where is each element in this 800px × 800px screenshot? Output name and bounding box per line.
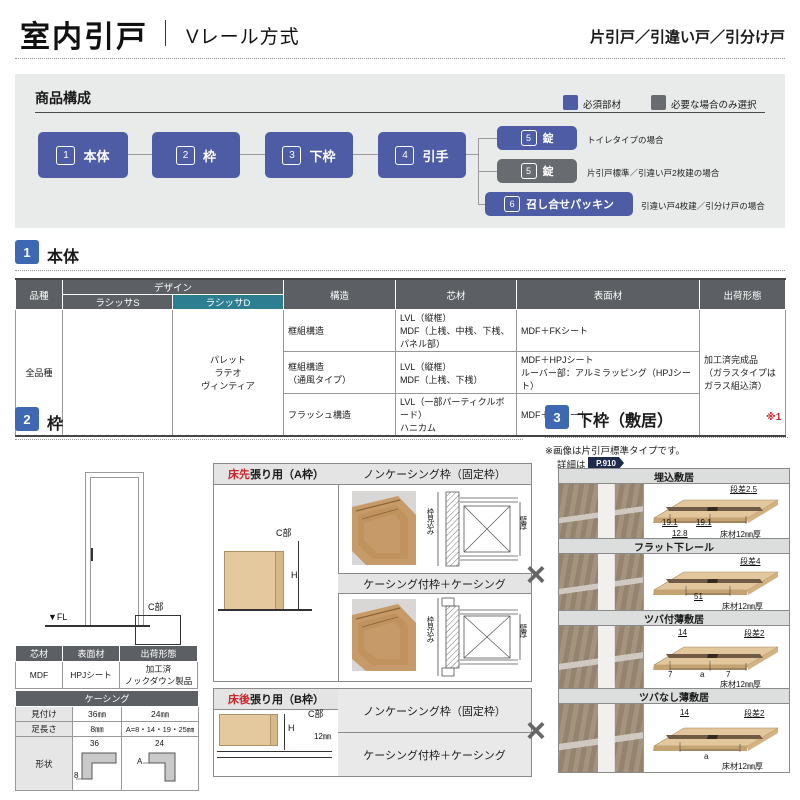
a-frame-header-red: 床先 — [228, 466, 250, 482]
floor-line — [217, 757, 332, 758]
composition-title: 商品構成 — [35, 88, 91, 108]
cell-shinzai: LVL（縦框） MDF（上桟、中桟、下桟、パネル部） — [396, 310, 517, 352]
kabeatsu-label: 壁厚 — [518, 516, 529, 529]
sill-item-title: フラット下レール — [559, 539, 789, 554]
title-divider — [165, 20, 166, 46]
sill-item: ツバ付薄敷居 14 段差2 7 a 7 — [558, 610, 790, 691]
casing-header: ケーシング付枠＋ケーシング — [338, 573, 531, 594]
b-frame-header-red: 床後 — [228, 691, 250, 707]
sill-photo — [559, 484, 644, 540]
h-dim-label: H — [291, 570, 298, 580]
sill-photo — [559, 626, 644, 690]
sill-item-title: ツバなし薄敷居 — [559, 689, 789, 704]
mat-col-shukka: 出荷形態 — [120, 646, 198, 662]
branch-connector — [478, 171, 497, 172]
step-number-1: 1 — [56, 146, 75, 165]
noncasing-photo — [352, 491, 416, 565]
sill-isometric-drawing — [646, 566, 786, 598]
flow-connector — [466, 154, 478, 155]
dim-center: a — [700, 670, 704, 679]
flow-connector — [128, 154, 152, 155]
flow-box-body: 1 本体 — [38, 132, 128, 178]
branch-connector — [478, 204, 485, 205]
section-title-frame: 枠 — [47, 410, 63, 434]
casing-row3-label: 形状 — [16, 737, 73, 791]
sill-note: ※画像は片引戸標準タイプです。 — [545, 443, 685, 457]
door-frame-outline-inner — [90, 477, 139, 626]
c-part-label: C部 — [276, 526, 292, 539]
section-title-body: 本体 — [47, 243, 79, 267]
flow-box-frame: 2 枠 — [152, 132, 240, 178]
b-frame-header-rest: 張り用（B枠） — [250, 691, 324, 707]
casing-row1-label: 見付け — [16, 707, 73, 722]
mat-shukka: 加工済 ノックダウン製品 — [120, 662, 198, 689]
section-badge-2: 2 — [15, 407, 39, 431]
dim-step: 段差2 — [744, 628, 764, 639]
b-noncasing-cell: ノンケーシング枠（固定枠） — [338, 689, 531, 733]
composition-panel: 商品構成 必須部材 必要な場合のみ選択 1 本体 2 枠 3 下枠 4 引手 — [15, 74, 785, 228]
a-frame-block: 床先張り用（A枠） ノンケーシング枠（固定枠） C部 H — [213, 463, 532, 682]
page-title: 室内引戸 — [20, 12, 148, 56]
dim-line — [284, 714, 285, 750]
sill-diagram: 段差2.5 19.1 19.1 12.8 床材12㎜厚 — [644, 484, 789, 540]
sill-item: 埋込敷居 段差2.5 19.1 19.1 12.8 — [558, 468, 790, 541]
mikomi-label: 枠見込み — [425, 508, 436, 534]
dim-12mm-label: 12㎜ — [314, 731, 331, 742]
ref-mark: ※1 — [766, 412, 781, 423]
sill-item-title: 埋込敷居 — [559, 469, 789, 484]
dim-right: 7 — [726, 670, 730, 679]
a-frame-right: 枠見込み 壁厚 ケーシング付枠＋ケーシング — [338, 484, 531, 681]
col-kozo: 構造 — [284, 279, 396, 310]
casing-shape-24: 24 A — [122, 737, 199, 791]
branch-box-packing: 6 召し合せパッキン — [485, 192, 633, 216]
mat-shinzai: MDF — [16, 662, 63, 689]
casing-profile-36-icon — [74, 749, 120, 787]
step-number-5: 5 — [521, 130, 537, 146]
mat-col-shinzai: 芯材 — [16, 646, 63, 662]
step-number-4: 4 — [395, 146, 414, 165]
sill-item: ツバなし薄敷居 14 段差2 a 床材12㎜厚 — [558, 688, 790, 773]
shape-dim-8: 8 — [74, 771, 78, 780]
sill-diagram: 14 段差2 7 a 7 床材12㎜厚 — [644, 626, 789, 690]
flow-box-sill: 3 下枠 — [265, 132, 353, 178]
branch-box-lock-standard: 5 錠 — [497, 159, 577, 183]
b-frame-block: 床後張り用（B枠） H C部 12㎜ ノンケーシング枠（固定枠） ケーシング付枠… — [213, 688, 532, 777]
dim-right: 19.1 — [696, 518, 712, 527]
cell-kozo: 框組構造 （通風タイプ） — [284, 352, 396, 394]
col-hyomen: 表面材 — [517, 279, 700, 310]
sill-diagram: 14 段差2 a 床材12㎜厚 — [644, 704, 789, 772]
frame-edge-section — [275, 551, 284, 611]
branch-note: 片引戸標準／引違い戸2枚建の場合 — [587, 167, 719, 179]
col-design: デザイン — [63, 279, 284, 295]
step-number-6: 6 — [504, 196, 520, 212]
casing-photo — [352, 599, 416, 671]
door-panel-section — [224, 551, 276, 611]
col-shukka: 出荷形態 — [700, 279, 786, 310]
legend-required-swatch — [563, 95, 578, 110]
section-divider — [15, 270, 785, 271]
dim-line — [298, 541, 299, 611]
door-types-label: 片引戸／引違い戸／引分け戸 — [590, 26, 785, 47]
legend-required-label: 必須部材 — [583, 97, 621, 111]
cell-hyomen: MDF＋HPJシート ルーバー部：アルミラッピング（HPJシート） — [517, 352, 700, 394]
cell-kozo: 框組構造 — [284, 310, 396, 352]
composition-underline — [35, 112, 765, 113]
dim-step: 段差4 — [740, 556, 760, 567]
a-frame-header: 床先張り用（A枠） — [214, 464, 339, 485]
col-hinshu: 品種 — [16, 279, 63, 310]
dim-center: 51 — [694, 592, 703, 601]
sill-item: フラット下レール 段差4 51 床材12㎜厚 — [558, 538, 790, 613]
cell-shinzai: LVL（縦框） MDF（上桟、下桟） — [396, 352, 517, 394]
flow-connector — [353, 154, 378, 155]
casing-table: ケーシング 見付け 36㎜ 24㎜ 足長さ 8㎜ A=8・14・19・25㎜ 形… — [15, 690, 199, 791]
c-part-label: C部 — [148, 600, 164, 613]
sill-photo — [559, 704, 644, 772]
door-panel-section — [219, 714, 271, 746]
cell-hyomen: MDF＋FKシート — [517, 310, 700, 352]
fl-label: ▼FL — [48, 612, 67, 622]
sill-diagram: 段差4 51 床材12㎜厚 — [644, 554, 789, 612]
casing-profile-24-icon — [137, 749, 183, 787]
casing-title: ケーシング — [16, 691, 199, 707]
header-divider — [15, 58, 785, 59]
mikomi-label: 枠見込み — [425, 616, 436, 642]
casing-row1-v1: 36㎜ — [73, 707, 122, 722]
floor-material-label: 床材12㎜厚 — [722, 761, 763, 772]
cell-lasissa-s — [63, 310, 173, 437]
branch-connector — [478, 138, 497, 139]
combination-cross-icon: × — [526, 714, 546, 748]
casing-row1-v2: 24㎜ — [122, 707, 199, 722]
casing-row2-label: 足長さ — [16, 722, 73, 737]
section-badge-3: 3 — [545, 405, 569, 429]
dim-bottom: 12.8 — [672, 529, 688, 538]
floor-line — [218, 609, 312, 611]
casing-shape-36: 36 8 — [73, 737, 122, 791]
dim-left: 7 — [668, 670, 672, 679]
branch-box-lock-toilet: 5 錠 — [497, 126, 577, 150]
rail-type-label: Vレール方式 — [186, 22, 300, 49]
branch-note: 引違い戸4枚建／引分け戸の場合 — [641, 200, 765, 212]
c-part-label: C部 — [308, 707, 324, 720]
sill-item-title: ツバ付薄敷居 — [559, 611, 789, 626]
shape-dim-24: 24 — [155, 739, 164, 748]
section-divider — [545, 437, 788, 438]
branch-note: トイレタイプの場合 — [587, 134, 664, 146]
casing-drawing: 枠見込み 壁厚 — [426, 596, 526, 678]
kabeatsu-label: 壁厚 — [518, 624, 529, 637]
cell-lasissa-d: パレット ラテオ ヴィンティア — [173, 310, 284, 437]
b-casing-cell: ケーシング付枠＋ケーシング — [338, 733, 531, 776]
flow-connector — [240, 154, 265, 155]
mat-col-hyomen: 表面材 — [63, 646, 120, 662]
step-number-2: 2 — [176, 146, 195, 165]
noncasing-header: ノンケーシング枠（固定枠） — [338, 464, 531, 485]
dim-step: 段差2.5 — [730, 484, 757, 495]
legend-optional-swatch — [651, 95, 666, 110]
dim-top: 14 — [678, 628, 687, 637]
noncasing-drawing: 枠見込み 壁厚 — [426, 488, 526, 570]
section-title-sill: 下枠（敷居） — [577, 407, 673, 431]
a-frame-diagram: C部 H — [214, 484, 339, 681]
dim-left: 19.1 — [662, 518, 678, 527]
col-lasissa-s: ラシッサS — [63, 295, 173, 310]
shape-dim-36: 36 — [90, 739, 99, 748]
frame-material-table: 芯材 表面材 出荷形態 MDF HPJシート 加工済 ノックダウン製品 — [15, 645, 198, 689]
b-frame-diagram: H C部 12㎜ — [214, 709, 339, 776]
combination-cross-icon: × — [526, 558, 546, 592]
frame-edge-section — [270, 714, 278, 746]
sill-isometric-drawing — [646, 722, 786, 754]
col-lasissa-d: ラシッサD — [173, 295, 284, 310]
sill-isometric-drawing — [646, 641, 786, 673]
section-badge-1: 1 — [15, 240, 39, 264]
casing-row2-v1: 8㎜ — [73, 722, 122, 737]
cell-shinzai: LVL（一部パーティクルボード） ハニカム — [396, 394, 517, 437]
step-number-5: 5 — [521, 163, 537, 179]
dim-top: 14 — [680, 708, 689, 717]
c-detail-box — [135, 615, 181, 645]
shape-dim-a: A — [137, 757, 142, 766]
dim-center: a — [704, 752, 708, 761]
a-frame-header-rest: 張り用（A枠） — [250, 466, 324, 482]
casing-row2-v2: A=8・14・19・25㎜ — [122, 722, 199, 737]
legend-optional-label: 必要な場合のみ選択 — [671, 97, 757, 111]
catalog-page: 室内引戸 Vレール方式 片引戸／引違い戸／引分け戸 商品構成 必須部材 必要な場… — [0, 0, 800, 800]
h-dim-label: H — [288, 723, 295, 733]
section-divider — [15, 439, 523, 440]
sill-photo — [559, 554, 644, 612]
flow-box-handle: 4 引手 — [378, 132, 466, 178]
dim-step: 段差2 — [744, 708, 764, 719]
cell-kozo: フラッシュ構造 — [284, 394, 396, 437]
floor-line — [217, 751, 332, 752]
step-number-3: 3 — [282, 146, 301, 165]
door-handle-mark — [91, 548, 93, 561]
col-shinzai: 芯材 — [396, 279, 517, 310]
mat-hyomen: HPJシート — [63, 662, 120, 689]
